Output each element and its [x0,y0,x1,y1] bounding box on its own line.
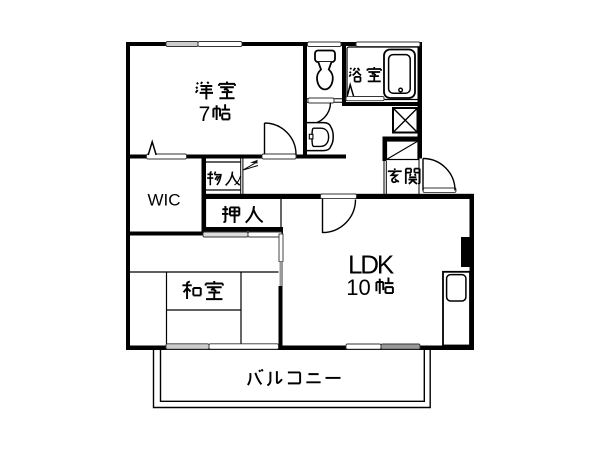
svg-text:WIC: WIC [147,191,180,210]
svg-text:7: 7 [199,103,211,126]
svg-text:10: 10 [346,275,370,300]
